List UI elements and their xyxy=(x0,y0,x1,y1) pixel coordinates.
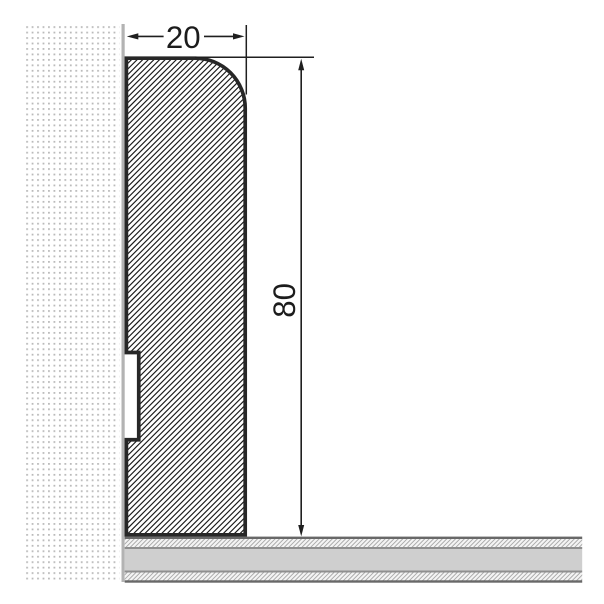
svg-text:80: 80 xyxy=(267,283,302,318)
svg-text:20: 20 xyxy=(166,20,201,55)
